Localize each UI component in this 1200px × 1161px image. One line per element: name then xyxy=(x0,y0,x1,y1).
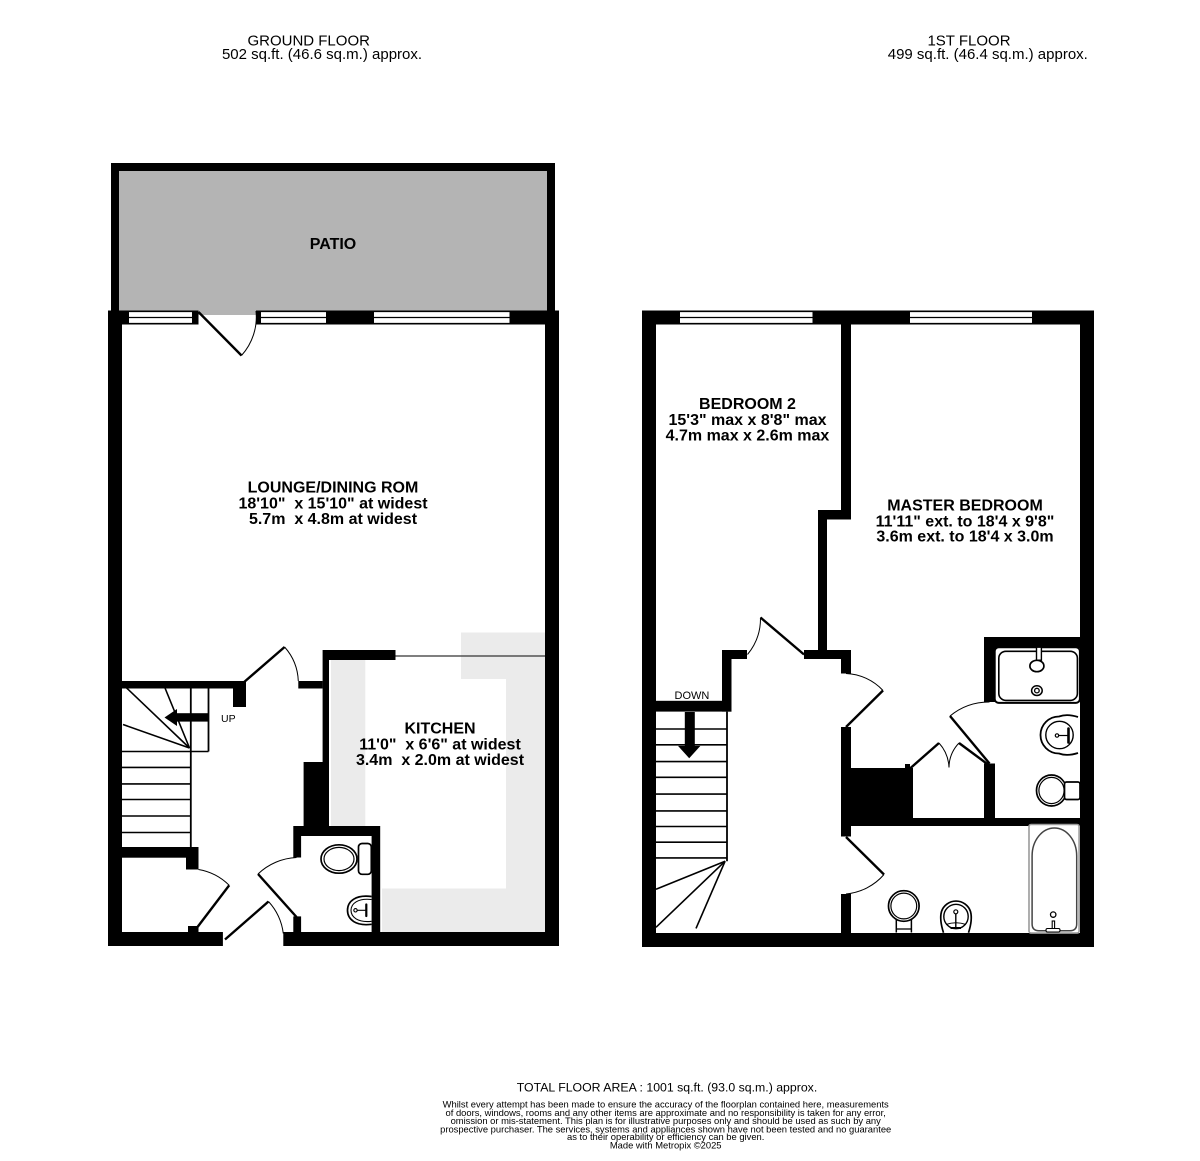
svg-text:11'0" x 6'6" at widest: 11'0" x 6'6" at widest xyxy=(359,737,521,754)
svg-text:502 sq.ft. (46.6 sq.m.) approx: 502 sq.ft. (46.6 sq.m.) approx. xyxy=(222,46,422,63)
svg-text:Made with Metropix ©2025: Made with Metropix ©2025 xyxy=(610,1140,722,1151)
svg-text:5.7m x 4.8m at widest: 5.7m x 4.8m at widest xyxy=(249,511,418,528)
svg-text:15'3" max x 8'8" max: 15'3" max x 8'8" max xyxy=(669,412,827,429)
svg-text:499 sq.ft. (46.4 sq.m.) approx: 499 sq.ft. (46.4 sq.m.) approx. xyxy=(888,46,1088,63)
svg-text:4.7m max x 2.6m max: 4.7m max x 2.6m max xyxy=(666,428,830,445)
svg-text:18'10" x 15'10" at widest: 18'10" x 15'10" at widest xyxy=(238,496,428,513)
svg-text:TOTAL FLOOR AREA : 1001 sq.ft.: TOTAL FLOOR AREA : 1001 sq.ft. (93.0 sq.… xyxy=(517,1081,818,1095)
svg-text:DOWN: DOWN xyxy=(675,690,710,702)
svg-text:3.6m ext. to 18'4 x 3.0m: 3.6m ext. to 18'4 x 3.0m xyxy=(876,529,1053,546)
svg-text:MASTER BEDROOM: MASTER BEDROOM xyxy=(887,498,1043,515)
svg-text:KITCHEN: KITCHEN xyxy=(404,721,475,738)
svg-text:PATIO: PATIO xyxy=(310,236,357,253)
svg-text:LOUNGE/DINING ROM: LOUNGE/DINING ROM xyxy=(248,480,419,497)
svg-text:3.4m x 2.0m at widest: 3.4m x 2.0m at widest xyxy=(356,752,525,769)
svg-text:BEDROOM 2: BEDROOM 2 xyxy=(699,396,796,413)
svg-text:UP: UP xyxy=(221,713,236,725)
